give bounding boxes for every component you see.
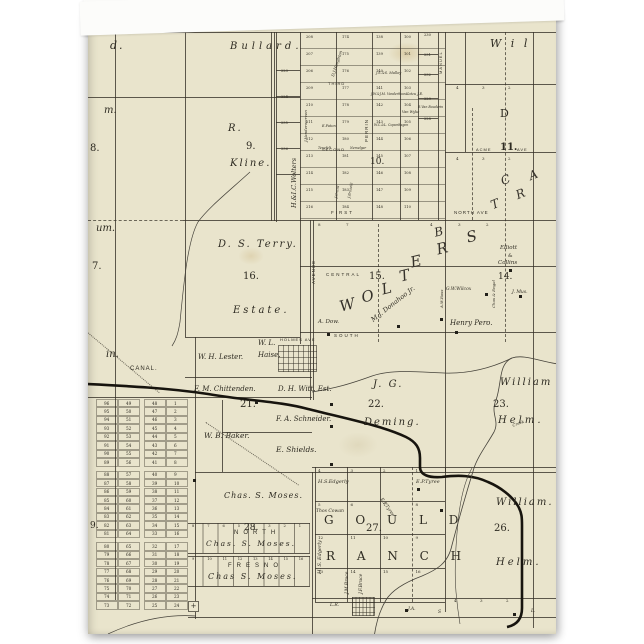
- colony-lot-cell: 80: [96, 542, 118, 550]
- colony-lot-cell: 45: [144, 424, 166, 432]
- colony-lot-number: 83: [104, 515, 109, 519]
- colony-lot-cell: 35: [144, 513, 166, 521]
- deming-initials: J. G.: [373, 380, 403, 390]
- house-marker: [513, 613, 516, 616]
- first-ave: FIRST: [331, 211, 354, 216]
- colony-lot-cell: 63: [118, 521, 140, 529]
- colony-lot-cell: 91: [96, 441, 118, 449]
- wilcox-name: G.W.Wilcox: [446, 288, 471, 293]
- crans-vertical: J.Crans: [335, 185, 341, 198]
- ave-label: AVE: [517, 148, 528, 152]
- gould-lot-number: 15: [383, 570, 388, 574]
- colony-lot-number: 38: [152, 490, 157, 494]
- house-marker: [330, 425, 333, 428]
- colony-lot-number: 52: [126, 427, 131, 431]
- gould-word: G O U L D: [324, 514, 467, 526]
- colony-lot-number: 66: [126, 553, 131, 557]
- moses-name-upper: Chas. S. Moses.: [224, 492, 303, 500]
- bullard-label: Bullard.: [230, 42, 303, 52]
- road-line: [185, 377, 312, 378]
- colony-lot-number: 70: [126, 587, 131, 591]
- tract-letter-r: R: [514, 187, 527, 202]
- road-line: [312, 472, 313, 634]
- plat-lot-number: 230: [424, 34, 431, 38]
- colony-lot-cell: 66: [118, 551, 140, 559]
- colony-lot-cell: 50: [118, 407, 140, 415]
- colony-lot-number: 11: [174, 490, 179, 494]
- colony-lot-cell: 44: [144, 433, 166, 441]
- colony-lot-cell: 20: [166, 568, 188, 576]
- fresno-strip-lot-number: 1: [299, 525, 301, 529]
- lester-name: W. H. Lester.: [198, 354, 243, 361]
- plat-lot-number: 147: [376, 189, 383, 193]
- jf-bruce-vertical: J.F.Bruce: [360, 574, 365, 594]
- benchmark-cross-symbol: +: [188, 601, 199, 612]
- colony-lot-cell: 54: [118, 441, 140, 449]
- plat-lot-number: 178: [342, 104, 349, 108]
- plat-lot-number: 215: [306, 189, 313, 193]
- colony-lot-cell: 60: [118, 496, 140, 504]
- colony-lot-cell: 52: [118, 424, 140, 432]
- colony-lot-number: 17: [174, 545, 179, 549]
- colony-lot-cell: 14: [166, 513, 188, 521]
- colony-lot-number: 57: [126, 473, 131, 477]
- road-line: [533, 32, 534, 628]
- avenue-vertical: AVENUE: [312, 260, 317, 284]
- colony-lot-number: 16: [174, 532, 179, 536]
- fresno-strip-lot-number: 12: [238, 558, 243, 562]
- plat-lot-number: 175: [342, 53, 349, 57]
- plat-lot-number: 229: [424, 98, 431, 102]
- page-background: { "card": { "kind": "greeting-card-front…: [0, 0, 644, 644]
- colony-lot-cell: 85: [96, 496, 118, 504]
- road-line: [465, 32, 466, 152]
- north-ave: NORTH AVE: [454, 211, 489, 216]
- plat-lot-number: 176: [342, 70, 349, 74]
- deming-name: Deming.: [364, 418, 421, 428]
- gould-lot-number: 5: [318, 503, 321, 507]
- corner-tick-number: 8: [318, 223, 321, 227]
- colony-lot-cell: 83: [96, 513, 118, 521]
- corner-tick-number: 2: [508, 157, 511, 161]
- gould-lot-number: 7: [383, 503, 386, 507]
- plat-lot-number: 107: [404, 155, 411, 159]
- section-line-dashed: [378, 224, 379, 342]
- colony-lot-number: 26: [152, 595, 157, 599]
- colony-lot-number: 7: [174, 452, 177, 456]
- plat-lot-number: 228: [424, 118, 431, 122]
- ranch-word: R A N C H: [326, 550, 470, 562]
- plat-lot-number: 108: [404, 172, 411, 176]
- section-23: 23.: [493, 400, 509, 410]
- road-line: [418, 32, 419, 220]
- wolters-letter-l: L: [380, 281, 393, 298]
- gould-lot-number: 16: [416, 570, 421, 574]
- colony-lot-cell: 32: [144, 542, 166, 550]
- section-line-dashed: [472, 108, 473, 220]
- colony-lot-cell: 25: [144, 601, 166, 609]
- colony-lot-number: 40: [152, 473, 157, 477]
- boundary-line-dotted: [88, 328, 160, 393]
- road-line: [312, 467, 556, 468]
- vanderhoos-name: J.W.&J.M. Vanderhoos: [371, 93, 406, 96]
- colony-lot-number: 15: [174, 524, 179, 528]
- colony-lot-cell: 39: [144, 479, 166, 487]
- terry-name: D. S. Terry.: [218, 240, 298, 250]
- road-line: [372, 32, 373, 220]
- road-line: [188, 617, 556, 618]
- colony-lot-cell: 56: [118, 458, 140, 466]
- colony-lot-number: 55: [126, 452, 131, 456]
- colony-lot-number: 54: [126, 444, 131, 448]
- elliott-amp: &: [508, 254, 512, 259]
- colony-lot-number: 72: [126, 604, 131, 608]
- helm26-name: Helm.: [496, 558, 542, 568]
- colony-lot-cell: 64: [118, 530, 140, 538]
- colony-lot-cell: 48: [144, 399, 166, 407]
- gould-lot-number: 12: [318, 536, 323, 540]
- gould-lot-number: 13: [318, 570, 323, 574]
- colony-lot-cell: 26: [144, 593, 166, 601]
- colony-lot-cell: 68: [118, 568, 140, 576]
- colony-lot-number: 87: [104, 482, 109, 486]
- colony-lot-cell: 41: [144, 458, 166, 466]
- plat-lot-number: 208: [306, 36, 313, 40]
- road-line: [195, 337, 196, 619]
- tract-letter-b: B: [433, 225, 444, 239]
- colony-lot-cell: 53: [118, 433, 140, 441]
- colony-lot-number: 88: [104, 473, 109, 477]
- road-line: [300, 266, 556, 267]
- plat-lot-number: 207: [306, 53, 313, 57]
- colony-lot-number: 96: [104, 402, 109, 406]
- colony-lot-number: 94: [104, 418, 109, 422]
- colony-lot-cell: 76: [96, 576, 118, 584]
- fresno-strip-lot-number: 11: [223, 558, 228, 562]
- road-line: [276, 70, 300, 71]
- colony-lot-number: 53: [126, 435, 131, 439]
- corner-tick-number: 3: [482, 157, 485, 161]
- colony-lot-cell: 90: [96, 450, 118, 458]
- house-marker: [405, 609, 408, 612]
- road-line: [183, 220, 556, 221]
- wolters-strip-lot-number: 236: [281, 148, 288, 152]
- colony-lot-number: 60: [126, 499, 131, 503]
- colony-lot-number: 45: [152, 427, 157, 431]
- haise-initials: W. L.: [258, 340, 275, 347]
- colony-lot-number: 35: [152, 515, 157, 519]
- fresno-strip-lot-number: 5: [238, 525, 240, 529]
- colony-lot-cell: 65: [118, 542, 140, 550]
- plat-lot-number: 181: [342, 155, 349, 159]
- vanwyke-name: Van Wyke: [402, 111, 419, 115]
- plat-lot-number: 144: [376, 138, 383, 142]
- colony-lot-cell: 84: [96, 504, 118, 512]
- corner-tick-number: 4: [430, 223, 433, 227]
- section-14: 14.: [498, 273, 512, 282]
- perrin-vertical: PERRIN: [365, 119, 370, 142]
- canal-label: CANAL.: [130, 366, 158, 372]
- plat-lot-number: 109: [404, 189, 411, 193]
- corner-tick-number: 2: [508, 86, 511, 90]
- fresno-strip-lot-number: 15: [284, 558, 289, 562]
- colony-lot-cell: 46: [144, 416, 166, 424]
- colony-lot-number: 44: [152, 435, 157, 439]
- colony-lot-cell: 31: [144, 551, 166, 559]
- faton-name: E.Faton: [322, 125, 336, 129]
- road-line: [271, 32, 272, 221]
- colony-lot-number: 69: [126, 579, 131, 583]
- colony-lot-number: 1: [174, 402, 177, 406]
- moses-name-north-strip: Chas. S. Moses.: [206, 540, 296, 548]
- house-marker: [440, 509, 443, 512]
- kline-initial: R.: [228, 124, 243, 134]
- witt-name: D. H. Witt. Est.: [278, 386, 332, 393]
- colony-lot-number: 75: [104, 587, 109, 591]
- colony-lot-cell: 93: [96, 424, 118, 432]
- colony-lot-cell: 1: [166, 399, 188, 407]
- fresno-strip-lot-number: 2: [284, 525, 286, 529]
- jm-bruce-vertical: J.M.Bruce: [346, 572, 351, 594]
- colony-lot-cell: 69: [118, 576, 140, 584]
- colony-lot-cell: 49: [118, 399, 140, 407]
- north-fresno-fresno: FRESNO: [228, 563, 283, 569]
- cut-label-m: m.: [104, 106, 117, 116]
- colony-lot-number: 50: [126, 410, 131, 414]
- colony-lot-cell: 81: [96, 530, 118, 538]
- ja-name: J.A.: [408, 608, 416, 613]
- gould-lot-number: 11: [351, 536, 356, 540]
- fresno-strip-lot-number: 16: [299, 558, 304, 562]
- road-line: [88, 397, 312, 398]
- colony-lot-cell: 33: [144, 530, 166, 538]
- colony-lot-cell: 57: [118, 471, 140, 479]
- creek-line-kline: [172, 172, 250, 346]
- house-marker: [330, 403, 333, 406]
- corner-tick-number: 4: [456, 157, 459, 161]
- wolters-letter-e: E: [409, 253, 423, 270]
- chittenden-name: F. M. Chittenden.: [194, 386, 256, 393]
- tenefelt-name: Tenefelt: [318, 147, 331, 150]
- colony-lot-number: 23: [174, 595, 179, 599]
- section-d: D: [500, 108, 509, 119]
- fresno-strip-lot-number: 8: [192, 525, 194, 529]
- haise-tiny-subdivision: [278, 345, 317, 372]
- colony-lot-number: 86: [104, 490, 109, 494]
- colony-lot-number: 13: [174, 507, 179, 511]
- colony-lot-number: 6: [174, 444, 177, 448]
- wolters-strip-vertical: H.&I.C.Wolters: [291, 158, 298, 208]
- road-line: [313, 220, 314, 400]
- house-marker: [330, 463, 333, 466]
- colony-lot-cell: 94: [96, 416, 118, 424]
- colony-lot-cell: 2: [166, 407, 188, 415]
- fresno-strip-lot-number: 9: [192, 558, 194, 562]
- colony-lot-number: 92: [104, 435, 109, 439]
- colony-lot-cell: 75: [96, 584, 118, 592]
- colony-lot-cell: 95: [96, 407, 118, 415]
- colony-lot-number: 25: [152, 604, 157, 608]
- colony-lot-cell: 18: [166, 551, 188, 559]
- edgerly-name: H.S.Edgerly: [318, 480, 349, 485]
- plat-lot-number: 210: [306, 104, 313, 108]
- moses-name-fresno-strip: Chas S. Moses.: [208, 573, 297, 581]
- corner-tick-number: 3: [482, 86, 485, 90]
- colony-lot-cell: 47: [144, 407, 166, 415]
- colony-lot-cell: 24: [166, 601, 188, 609]
- colony-lot-cell: 43: [144, 441, 166, 449]
- colony-lot-number: 5: [174, 435, 177, 439]
- bouderin-name: R.Van Bouderin: [418, 106, 443, 109]
- gould-lot-number: 6: [351, 503, 354, 507]
- colony-lot-number: 77: [104, 570, 109, 574]
- holmes-ave: HOLMES AVE: [280, 338, 316, 342]
- greeting-card-front-map: d.Bullard.W i lm.8.R.9.Kline.um.7.D. S. …: [88, 12, 556, 634]
- colony-lot-cell: 4: [166, 424, 188, 432]
- section-16: 16.: [243, 272, 259, 282]
- road-line: [188, 586, 310, 587]
- creek-label: Creek: [512, 420, 525, 428]
- colony-lot-number: 63: [126, 524, 131, 528]
- plat-lot-number: 103: [404, 87, 411, 91]
- colony-lot-number: 59: [126, 490, 131, 494]
- colony-lot-cell: 61: [118, 504, 140, 512]
- colony-lot-number: 31: [152, 553, 157, 557]
- road-line: [315, 568, 445, 569]
- plat-lot-number: 179: [342, 121, 349, 125]
- plat-lot-number: 209: [306, 87, 313, 91]
- road-line: [300, 32, 301, 344]
- colony-lot-number: 51: [126, 418, 131, 422]
- colony-lot-number: 61: [126, 507, 131, 511]
- tract-letter-a: A: [527, 168, 540, 182]
- house-marker: [417, 488, 420, 491]
- colony-lot-cell: 51: [118, 416, 140, 424]
- colony-lot-cell: 72: [118, 601, 140, 609]
- colony-lot-number: 34: [152, 524, 157, 528]
- wolters-strip-lot-number: 224: [281, 96, 288, 100]
- manuel-vertical: MANUEL: [439, 51, 443, 74]
- colony-lot-cell: 40: [144, 471, 166, 479]
- colony-lot-number: 9: [174, 473, 177, 477]
- plat-lot-number: 231: [424, 54, 431, 58]
- gould-lot-number: 9: [416, 536, 419, 540]
- colony-lot-cell: 55: [118, 450, 140, 458]
- colony-lot-number: 89: [104, 461, 109, 465]
- colony-lot-cell: 11: [166, 488, 188, 496]
- williams-cut-label: W i l: [490, 38, 530, 49]
- wolters-letter-r: R: [435, 240, 450, 257]
- colony-lot-cell: 29: [144, 568, 166, 576]
- colony-lot-number: 95: [104, 410, 109, 414]
- colony-lot-cell: 77: [96, 568, 118, 576]
- colony-lot-cell: 88: [96, 471, 118, 479]
- colony-lot-number: 91: [104, 444, 109, 448]
- road-line: [274, 32, 275, 221]
- wolters-letter-s: S: [465, 229, 479, 246]
- central-ave: CENTRAL: [326, 273, 361, 278]
- road-line: [188, 553, 310, 554]
- colony-lot-cell: 70: [118, 584, 140, 592]
- fresno-strip-lot-number: 3: [268, 525, 270, 529]
- house-marker: [397, 325, 400, 328]
- gould-lot-number: 2: [383, 469, 386, 473]
- colony-lot-cell: 19: [166, 559, 188, 567]
- plat-lot-number: 102: [404, 70, 411, 74]
- house-marker: [485, 293, 488, 296]
- colony-lot-number: 18: [174, 553, 179, 557]
- baker-name: W. B. Baker.: [204, 432, 250, 440]
- corner-tick-number: 4: [454, 599, 457, 603]
- colony-lot-number: 19: [174, 562, 179, 566]
- colony-lot-cell: 59: [118, 488, 140, 496]
- plat-lot-number: 104: [404, 104, 411, 108]
- plat-lot-number: 101: [404, 53, 411, 57]
- plat-lot-number: 183: [342, 189, 349, 193]
- corner-tick-number: 7: [346, 223, 349, 227]
- plat-lot-number: 211: [306, 121, 313, 125]
- schneider-name: F. A. Schneider.: [276, 416, 331, 423]
- road-line: [445, 84, 556, 85]
- colony-lot-cell: 15: [166, 521, 188, 529]
- plat-lot-number: 106: [404, 138, 411, 142]
- colony-lot-cell: 37: [144, 496, 166, 504]
- colony-lot-cell: 8: [166, 458, 188, 466]
- colony-lot-number: 30: [152, 562, 157, 566]
- house-marker: [193, 479, 196, 482]
- s-label: S: [438, 611, 441, 616]
- plat-lot-number: 177: [342, 87, 349, 91]
- plat-lot-number: 182: [342, 172, 349, 176]
- colony-lot-number: 58: [126, 482, 131, 486]
- colony-lot-cell: 82: [96, 521, 118, 529]
- colony-lot-number: 65: [126, 545, 131, 549]
- plat-lot-number: 232: [424, 74, 431, 78]
- creek-line-deming: [312, 358, 512, 392]
- plat-lot-number: 145: [376, 155, 383, 159]
- colony-lot-number: 46: [152, 418, 157, 422]
- colony-lot-cell: 6: [166, 441, 188, 449]
- colony-lot-cell: 7: [166, 450, 188, 458]
- section-9: 9.: [246, 142, 256, 152]
- wolters-letter-t: T: [398, 268, 411, 285]
- colony-lot-cell: 12: [166, 496, 188, 504]
- south-ave: SOUTH: [334, 334, 360, 339]
- ross-vertical: A.W.Ross: [440, 290, 444, 308]
- colony-lot-number: 80: [104, 545, 109, 549]
- house-marker: [509, 269, 512, 272]
- helm26-william: William.: [496, 498, 554, 508]
- colony-lot-number: 39: [152, 482, 157, 486]
- creek-line-helm26: [455, 468, 472, 624]
- gould-lot-number: 3: [351, 469, 354, 473]
- colony-lot-number: 84: [104, 507, 109, 511]
- fresno-strip-lot-number: 6: [223, 525, 225, 529]
- tract-letter-c: C: [499, 173, 512, 188]
- colony-lot-number: 37: [152, 499, 157, 503]
- colony-lot-number: 4: [174, 427, 177, 431]
- plat-lot-number: 184: [342, 206, 349, 210]
- colony-lot-number: 3: [174, 418, 177, 422]
- house-marker: [519, 295, 522, 298]
- road-line: [276, 148, 300, 149]
- colony-lot-number: 48: [152, 402, 157, 406]
- section-26: 26.: [494, 524, 510, 534]
- wolters-strip-lot-number: 223: [281, 70, 288, 74]
- plat-lot-number: 138: [376, 36, 383, 40]
- colony-lot-cell: 27: [144, 584, 166, 592]
- colony-lot-cell: 92: [96, 433, 118, 441]
